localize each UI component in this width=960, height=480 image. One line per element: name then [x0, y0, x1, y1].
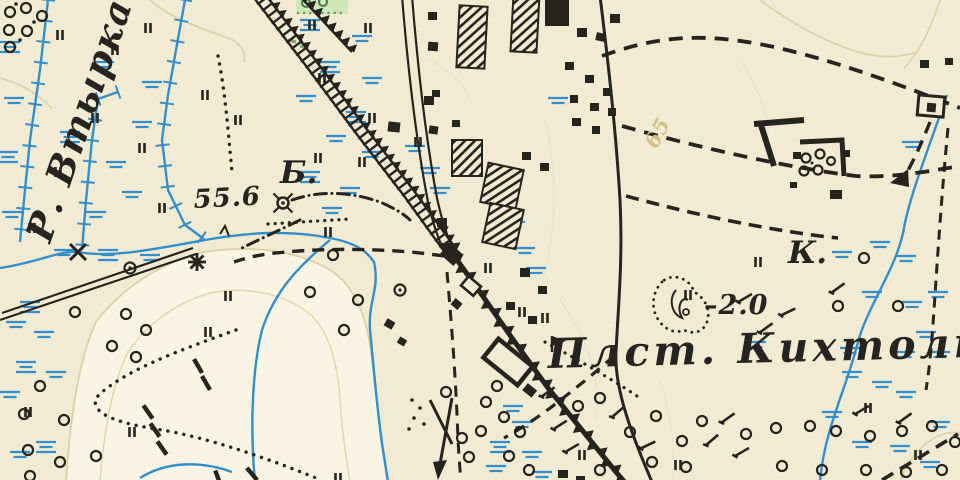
building-solid-icon — [432, 90, 440, 97]
building-solid-icon — [452, 120, 460, 127]
building-solid-icon — [793, 152, 801, 159]
building-hatched-icon — [480, 163, 524, 210]
building-solid-icon — [442, 243, 451, 251]
building-solid-icon — [945, 58, 953, 65]
building-solid-icon — [428, 12, 437, 20]
building-solid-icon — [437, 218, 447, 227]
map-svg: Р. Втырка 55.6 Б. К. –2.0 65 Плст. Кихто… — [0, 0, 960, 480]
windmill-icon — [274, 194, 293, 213]
building-solid-icon — [585, 75, 594, 83]
building-solid-icon — [540, 163, 549, 171]
ditch-tick-icon — [77, 223, 91, 224]
building-solid-icon — [830, 190, 842, 199]
building-solid-icon — [842, 150, 850, 157]
building-solid-icon — [520, 268, 530, 277]
building-solid-icon — [790, 182, 797, 188]
building-solid-icon — [920, 60, 929, 68]
building-hatched-icon — [452, 140, 482, 176]
dot-icon — [407, 427, 411, 431]
dot-icon — [422, 422, 426, 426]
building-solid-icon — [565, 62, 574, 70]
dot-icon — [412, 416, 416, 420]
spot-height-label: 55.6 — [193, 182, 262, 215]
building-hatched-icon — [511, 0, 540, 53]
dot-icon — [418, 406, 422, 410]
building-solid-icon — [428, 42, 439, 52]
building-solid-icon — [576, 476, 585, 480]
building-solid-icon — [577, 28, 587, 37]
building-solid-icon — [506, 302, 515, 310]
building-solid-icon — [610, 14, 620, 23]
dot-icon — [410, 398, 414, 402]
map-canvas: Р. Втырка 55.6 Б. К. –2.0 65 Плст. Кихто… — [0, 0, 960, 480]
building-solid-icon — [608, 108, 616, 116]
ditch-tick-icon — [81, 181, 95, 182]
ditch-tick-icon — [75, 244, 89, 245]
ditch-tick-icon — [79, 203, 93, 204]
building-solid-icon — [522, 152, 531, 160]
building-solid-icon — [572, 118, 581, 126]
building-solid-icon — [424, 96, 434, 105]
tree-dot-icon — [398, 288, 401, 291]
building-solid-icon — [926, 103, 936, 113]
building-solid-icon — [603, 88, 612, 96]
building-solid-icon — [528, 316, 537, 324]
ditch-tick-icon — [22, 145, 36, 146]
ditch-tick-icon — [18, 187, 32, 188]
building-hatched-icon — [456, 5, 487, 68]
building-solid-icon — [428, 125, 438, 134]
building-solid-icon — [538, 286, 547, 294]
building-solid-icon — [570, 95, 578, 103]
dot-icon — [18, 38, 22, 42]
tree-dot-icon — [128, 266, 131, 269]
building-solid-icon — [558, 470, 568, 478]
dot-icon — [14, 2, 18, 6]
tree-dot-icon — [811, 162, 814, 165]
depression-depth-label: –2.0 — [704, 290, 768, 321]
hill-letter-label: Б. — [279, 155, 317, 191]
dot-icon — [32, 20, 36, 24]
building-solid-icon — [590, 103, 599, 111]
building-solid-icon — [545, 0, 569, 26]
k-letter-label: К. — [787, 235, 827, 271]
building-solid-icon — [388, 121, 401, 132]
building-solid-icon — [592, 126, 600, 134]
ditch-tick-icon — [20, 166, 34, 167]
building-hatched-icon — [482, 203, 524, 249]
mill-star-icon — [188, 253, 206, 271]
